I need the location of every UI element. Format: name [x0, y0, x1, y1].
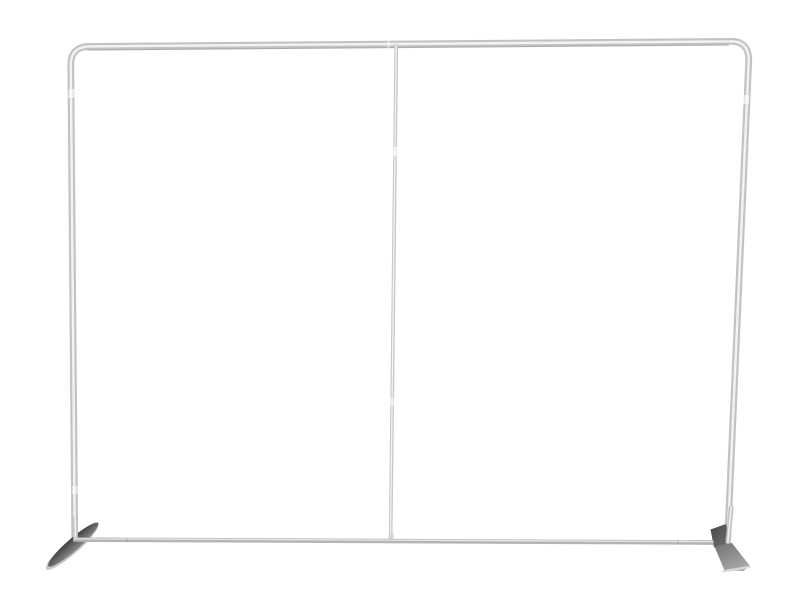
photo-background [0, 0, 800, 600]
right-upright-joint-band [743, 95, 750, 104]
left-upright-lower-joint-band [72, 486, 78, 494]
top-crossbar-seam-band [388, 41, 390, 49]
backdrop-frame-photo [0, 0, 800, 600]
center-pole-lower-joint-band [389, 398, 394, 406]
product-photo-canvas [0, 0, 800, 600]
center-pole-bottom-fitting [389, 534, 394, 540]
left-upright-joint-band [68, 89, 74, 98]
center-pole-upper-joint-band [393, 147, 399, 156]
